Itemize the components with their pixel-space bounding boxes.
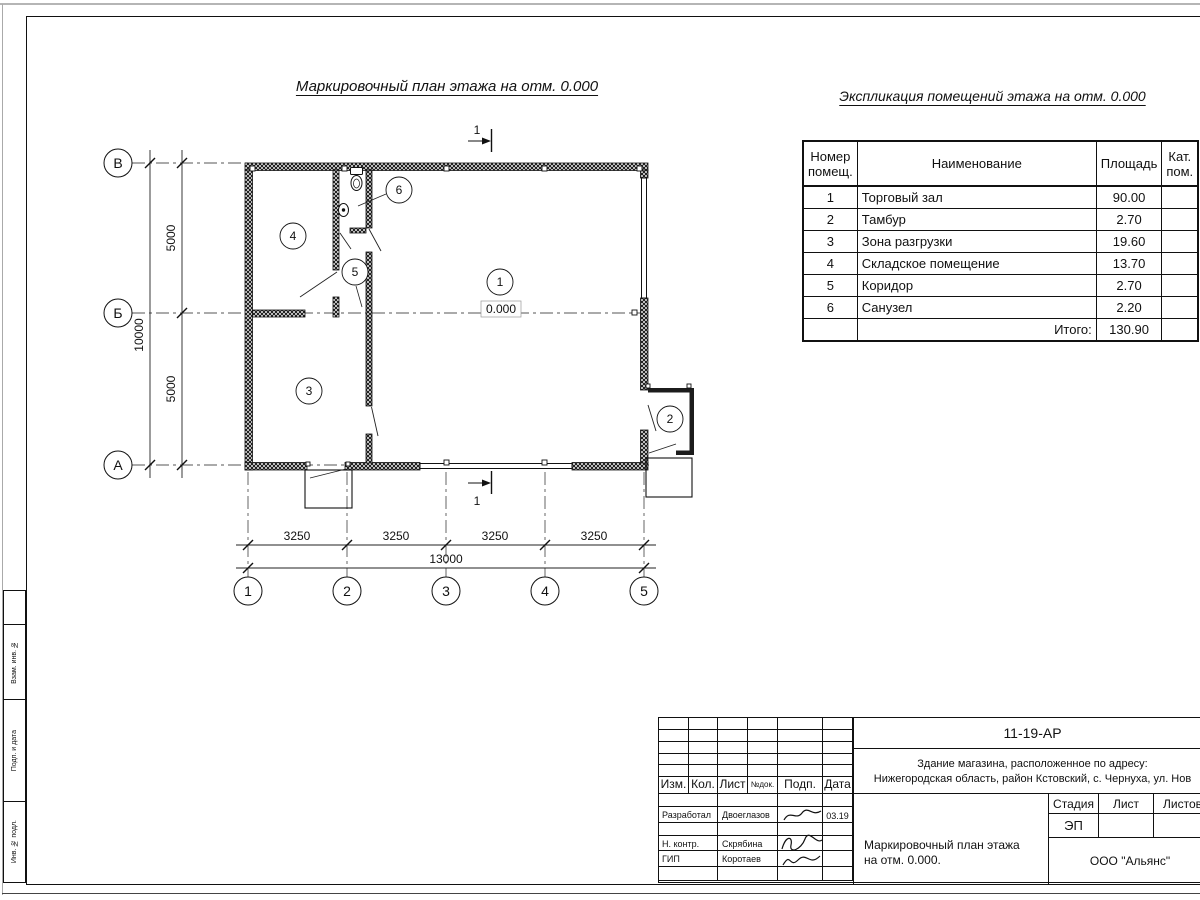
axis-label-5: 5 <box>640 583 648 599</box>
axis-label-4: 4 <box>541 583 549 599</box>
walls <box>245 163 648 470</box>
axis-bubbles <box>104 149 658 605</box>
drawing-title-line-2: на отм. 0.000. <box>864 853 1048 868</box>
row-name: Складское помещение <box>857 253 1096 275</box>
col-kol: Кол. <box>689 777 718 794</box>
sink-icon <box>339 204 349 217</box>
section-mark-top: 1 <box>468 123 492 152</box>
col-podp: Подп. <box>778 777 823 794</box>
row-cat <box>1162 253 1198 275</box>
axis-label-3: 3 <box>442 583 450 599</box>
tb-row-ncontr: Н. контр. Скрябина <box>659 836 853 851</box>
dim-3250-3: 3250 <box>482 529 509 543</box>
dim-10000: 10000 <box>132 318 146 352</box>
row-area: 13.70 <box>1096 253 1162 275</box>
company-cell: ООО "Альянс" <box>1048 838 1200 884</box>
total-empty <box>803 319 857 342</box>
doc-number: 11-19-АР <box>1003 725 1061 741</box>
revision-row <box>659 765 853 777</box>
axis-lines <box>132 163 650 577</box>
toilet-icon <box>351 168 363 191</box>
role-label: ГИП <box>659 851 718 867</box>
margin-label: Подп. и дата <box>11 730 18 771</box>
dim-3250-1: 3250 <box>284 529 311 543</box>
tb-header-row: Изм. Кол. Лист №док. Подп. Дата <box>659 777 853 794</box>
row-cat <box>1162 231 1198 253</box>
table-row: 3 Зона разгрузки 19.60 <box>803 231 1198 253</box>
drawing-sheet: Маркировочный план этажа на отм. 0.000 Э… <box>0 0 1200 900</box>
revision-row <box>659 730 853 742</box>
row-cat <box>1162 209 1198 231</box>
role-label: Н. контр. <box>659 836 718 851</box>
revision-row <box>659 718 853 730</box>
revision-row <box>659 742 853 754</box>
dimension-lines <box>150 150 656 568</box>
address-line-1: Здание магазина, расположенное по адресу… <box>854 757 1200 772</box>
row-cat <box>1162 275 1198 297</box>
tb-blank-row <box>659 823 853 836</box>
col-data: Дата <box>823 777 853 794</box>
row-area: 2.70 <box>1096 275 1162 297</box>
axis-label-b: Б <box>113 305 122 321</box>
section-mark-bottom: 1 <box>468 471 492 508</box>
total-label: Итого: <box>857 319 1096 342</box>
sheet-bottom-edge <box>2 893 1200 894</box>
room-3-number: 3 <box>306 384 313 398</box>
col-header-name: Наименование <box>857 141 1096 186</box>
sheet-label: Лист <box>1113 797 1139 811</box>
sheets-header-cell: Листов <box>1153 794 1200 814</box>
table-header-row: Номер помещ. Наименование Площадь Кат. п… <box>803 141 1198 186</box>
elevation-value: 0.000 <box>486 302 516 316</box>
col-header-cat: Кат. пом. <box>1162 141 1198 186</box>
axis-label-1: 1 <box>244 583 252 599</box>
company-name: ООО "Альянс" <box>1090 854 1170 868</box>
project-address-cell: Здание магазина, расположенное по адресу… <box>853 749 1200 794</box>
margin-label: Инв. № подл. <box>11 820 18 863</box>
dim-3250-2: 3250 <box>383 529 410 543</box>
row-num: 1 <box>803 186 857 209</box>
room-5-number: 5 <box>352 265 359 279</box>
stage-header-cell: Стадия <box>1048 794 1098 814</box>
table-row: 4 Складское помещение 13.70 <box>803 253 1198 275</box>
row-num: 6 <box>803 297 857 319</box>
table-row: 2 Тамбур 2.70 <box>803 209 1198 231</box>
row-num: 5 <box>803 275 857 297</box>
row-name: Тамбур <box>857 209 1096 231</box>
porch-right <box>646 458 692 497</box>
revision-row <box>659 754 853 765</box>
table-row: 6 Санузел 2.20 <box>803 297 1198 319</box>
room-2-number: 2 <box>667 412 674 426</box>
row-num: 4 <box>803 253 857 275</box>
plan-title: Маркировочный план этажа на отм. 0.000 <box>247 78 647 95</box>
col-ndok: №док. <box>748 777 778 794</box>
margin-cell-inv: Инв. № подл. <box>3 801 26 883</box>
drawing-title-cell: Маркировочный план этажа на отм. 0.000. <box>853 794 1048 884</box>
wall-marks <box>250 166 691 466</box>
table-total-row: Итого: 130.90 <box>803 319 1198 342</box>
tb-blank-row <box>659 867 853 881</box>
room-1-number: 1 <box>497 275 504 289</box>
row-area: 2.70 <box>1096 209 1162 231</box>
margin-cell-podp: Подп. и дата <box>3 699 26 802</box>
row-cat <box>1162 297 1198 319</box>
person-name: Коротаев <box>718 851 778 867</box>
person-name: Скрябина <box>718 836 778 851</box>
row-area: 2.20 <box>1096 297 1162 319</box>
row-area: 90.00 <box>1096 186 1162 209</box>
table-row: 1 Торговый зал 90.00 <box>803 186 1198 209</box>
address-line-2: Нижегородская область, район Кстовский, … <box>854 772 1200 787</box>
stage-value-cell: ЭП <box>1048 814 1098 838</box>
axis-label-2: 2 <box>343 583 351 599</box>
tb-row-gip: ГИП Коротаев <box>659 851 853 867</box>
col-header-area: Площадь <box>1096 141 1162 186</box>
sheet-header-cell: Лист <box>1098 794 1153 814</box>
sheets-label: Листов <box>1163 797 1200 811</box>
row-name: Зона разгрузки <box>857 231 1096 253</box>
margin-cell-vzam: Взам. инв. № <box>3 624 26 700</box>
doc-number-cell: 11-19-АР <box>853 718 1200 749</box>
row-num: 3 <box>803 231 857 253</box>
title-block: Изм. Кол. Лист №док. Подп. Дата Разработ… <box>658 717 1200 883</box>
room-4-number: 4 <box>290 229 297 243</box>
dimension-ticks <box>145 158 649 573</box>
row-area: 19.60 <box>1096 231 1162 253</box>
axis-label-v: В <box>113 155 122 171</box>
total-value: 130.90 <box>1096 319 1162 342</box>
dim-3250-4: 3250 <box>581 529 608 543</box>
dim-5000-lower: 5000 <box>164 375 178 402</box>
room-6-number: 6 <box>396 183 403 197</box>
margin-label: Взам. инв. № <box>11 641 18 684</box>
sheets-value-cell <box>1153 814 1200 838</box>
axis-label-a: А <box>113 457 123 473</box>
tambour <box>646 388 694 497</box>
col-izm: Изм. <box>659 777 689 794</box>
row-name: Коридор <box>857 275 1096 297</box>
section-label-bottom: 1 <box>474 494 481 508</box>
dim-5000-upper: 5000 <box>164 224 178 251</box>
porch-left <box>305 470 352 508</box>
stage-label: Стадия <box>1053 797 1094 811</box>
date-value: 03.19 <box>823 807 853 823</box>
margin-cell-blank <box>3 590 26 625</box>
row-cat <box>1162 186 1198 209</box>
sheet-top-edge <box>0 3 1200 5</box>
person-name: Двоеглазов <box>718 807 778 823</box>
col-list: Лист <box>718 777 748 794</box>
drawing-title-line-1: Маркировочный план этажа <box>864 838 1048 853</box>
dim-13000: 13000 <box>429 552 463 566</box>
total-cat <box>1162 319 1198 342</box>
windows <box>420 178 647 469</box>
row-name: Торговый зал <box>857 186 1096 209</box>
table-row: 5 Коридор 2.70 <box>803 275 1198 297</box>
stage-value: ЭП <box>1064 818 1083 833</box>
sheet-value-cell <box>1098 814 1153 838</box>
row-num: 2 <box>803 209 857 231</box>
col-header-number: Номер помещ. <box>803 141 857 186</box>
explication-table: Номер помещ. Наименование Площадь Кат. п… <box>802 140 1199 342</box>
row-name: Санузел <box>857 297 1096 319</box>
axis-labels: В Б А 1 2 3 4 5 <box>113 155 648 599</box>
explication-title: Экспликация помещений этажа на отм. 0.00… <box>800 88 1185 104</box>
tb-row-developer: Разработал Двоеглазов 03.19 <box>659 807 853 823</box>
margin-strip: Взам. инв. № Подп. и дата Инв. № подл. <box>3 590 26 883</box>
role-label: Разработал <box>659 807 718 823</box>
floor-plan: 5000 5000 10000 3250 3250 3250 3250 1300… <box>90 112 712 614</box>
section-label-top: 1 <box>474 123 481 137</box>
tb-blank-row <box>659 794 853 807</box>
